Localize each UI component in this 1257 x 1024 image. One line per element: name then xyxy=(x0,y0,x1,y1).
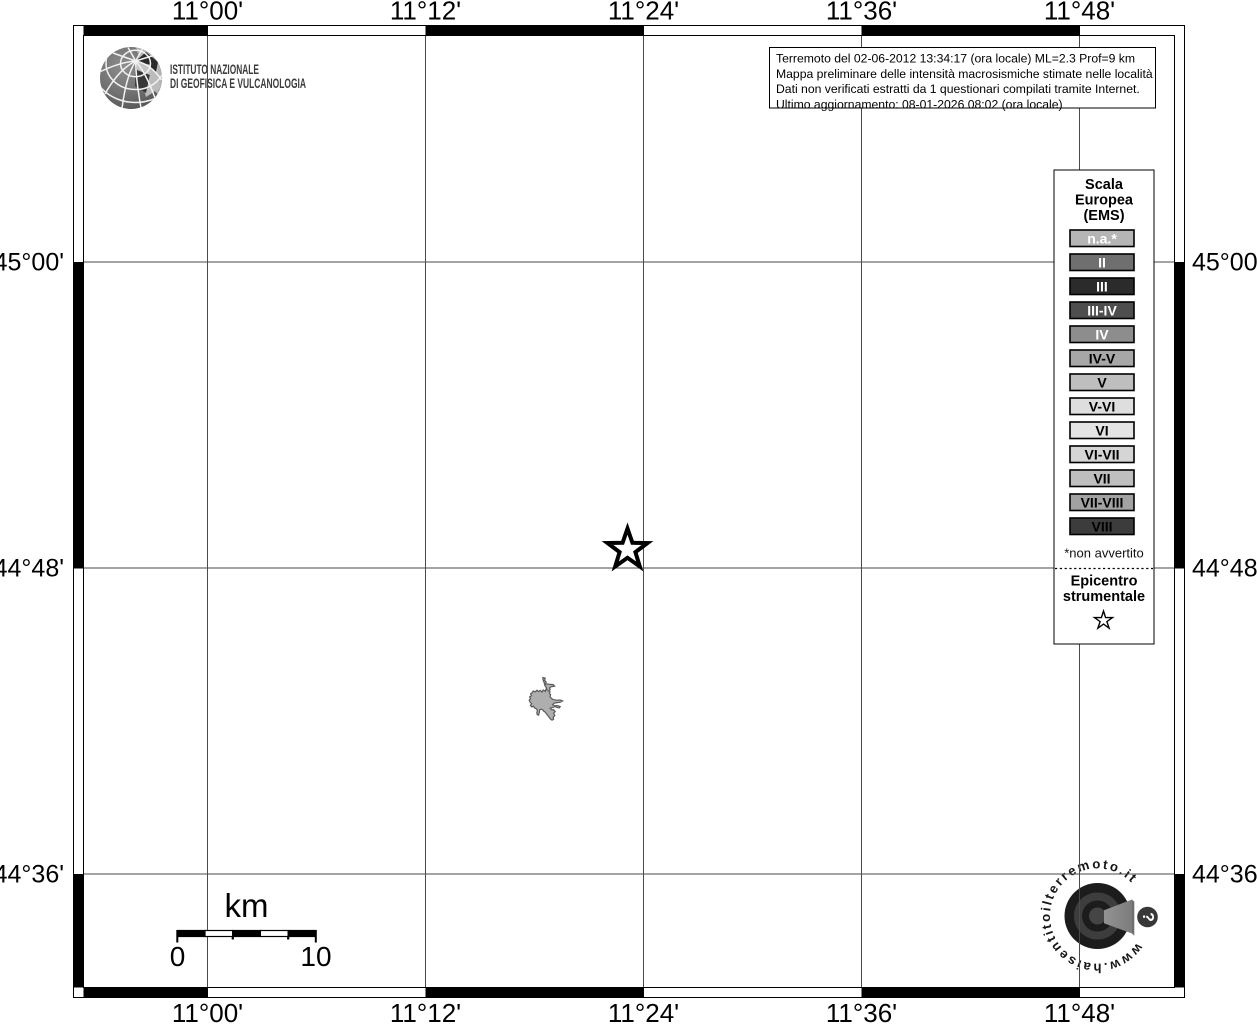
svg-text:II: II xyxy=(1098,255,1106,271)
svg-text:44°48': 44°48' xyxy=(1192,555,1257,583)
svg-text:11°00': 11°00' xyxy=(172,998,243,1024)
svg-text:Europea: Europea xyxy=(1075,193,1134,209)
svg-text:0: 0 xyxy=(170,941,186,972)
svg-text:*non avvertito: *non avvertito xyxy=(1064,546,1144,561)
svg-text:(EMS): (EMS) xyxy=(1083,208,1124,224)
svg-text:VIII: VIII xyxy=(1091,519,1112,535)
svg-text:44°36': 44°36' xyxy=(0,861,64,889)
svg-text:VI-VII: VI-VII xyxy=(1084,447,1119,463)
svg-text:10: 10 xyxy=(300,941,331,972)
svg-text:11°36': 11°36' xyxy=(826,0,897,26)
svg-text:11°48': 11°48' xyxy=(1044,0,1115,26)
svg-text:V: V xyxy=(1097,375,1107,391)
svg-text:V-VI: V-VI xyxy=(1089,399,1115,415)
svg-text:11°12': 11°12' xyxy=(390,998,461,1024)
svg-text:strumentale: strumentale xyxy=(1063,589,1145,605)
svg-text:45°00': 45°00' xyxy=(0,249,64,277)
svg-text:11°12': 11°12' xyxy=(390,0,461,26)
svg-text:44°36': 44°36' xyxy=(1192,861,1257,889)
svg-text:11°36': 11°36' xyxy=(826,998,897,1024)
svg-text:11°24': 11°24' xyxy=(608,0,679,26)
svg-text:ISTITUTO NAZIONALE: ISTITUTO NAZIONALE xyxy=(170,62,259,77)
svg-text:IV-V: IV-V xyxy=(1089,351,1116,367)
svg-text:III: III xyxy=(1096,279,1108,295)
svg-text:44°48': 44°48' xyxy=(0,555,64,583)
svg-text:Epicentro: Epicentro xyxy=(1071,574,1138,590)
svg-text:Terremoto del 02-06-2012 13:34: Terremoto del 02-06-2012 13:34:17 (ora l… xyxy=(776,52,1135,66)
svg-text:45°00': 45°00' xyxy=(1192,249,1257,277)
svg-text:VI: VI xyxy=(1095,423,1108,439)
svg-text:?: ? xyxy=(1139,912,1156,922)
svg-text:km: km xyxy=(225,887,269,924)
svg-text:III-IV: III-IV xyxy=(1087,303,1117,319)
svg-text:DI GEOFISICA E VULCANOLOGIA: DI GEOFISICA E VULCANOLOGIA xyxy=(170,76,306,91)
svg-text:Scala: Scala xyxy=(1085,177,1124,193)
svg-text:11°48': 11°48' xyxy=(1044,998,1115,1024)
svg-text:VII-VIII: VII-VIII xyxy=(1081,495,1124,511)
svg-text:IV: IV xyxy=(1095,327,1109,343)
svg-text:11°24': 11°24' xyxy=(608,998,679,1024)
svg-text:Ultimo aggiornamento: 08-01-20: Ultimo aggiornamento: 08-01-2026 08:02 (… xyxy=(776,98,1063,112)
svg-text:11°00': 11°00' xyxy=(172,0,243,26)
svg-text:Dati non verificati estratti d: Dati non verificati estratti da 1 questi… xyxy=(776,82,1140,96)
svg-text:VII: VII xyxy=(1093,471,1110,487)
svg-text:n.a.*: n.a.* xyxy=(1087,231,1117,247)
svg-text:Mappa preliminare delle intens: Mappa preliminare delle intensità macros… xyxy=(776,67,1153,81)
